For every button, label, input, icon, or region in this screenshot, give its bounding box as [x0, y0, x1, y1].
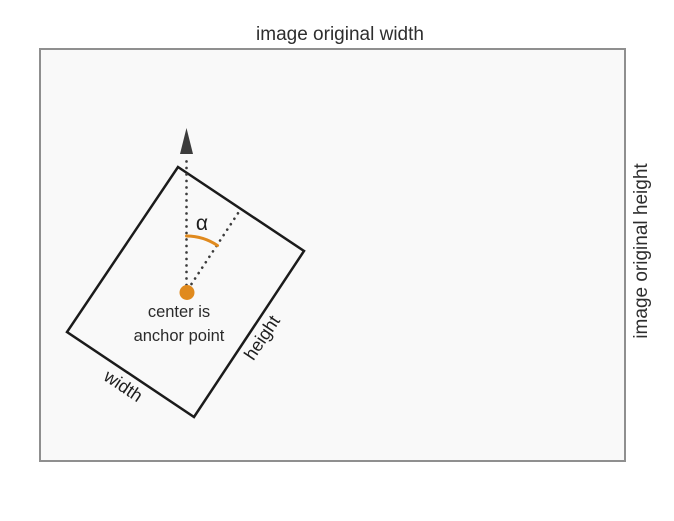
- anchor-point-dot: [180, 285, 195, 300]
- rotation-diagram: image original width image original heig…: [0, 0, 674, 521]
- alpha-label: α: [196, 212, 208, 235]
- anchor-caption-line2: anchor point: [134, 327, 225, 345]
- image-original-height-label: image original height: [631, 163, 652, 339]
- image-original-width-label: image original width: [256, 24, 424, 45]
- diagram-svg: image original width image original heig…: [0, 0, 674, 521]
- anchor-caption-line1: center is: [148, 303, 210, 321]
